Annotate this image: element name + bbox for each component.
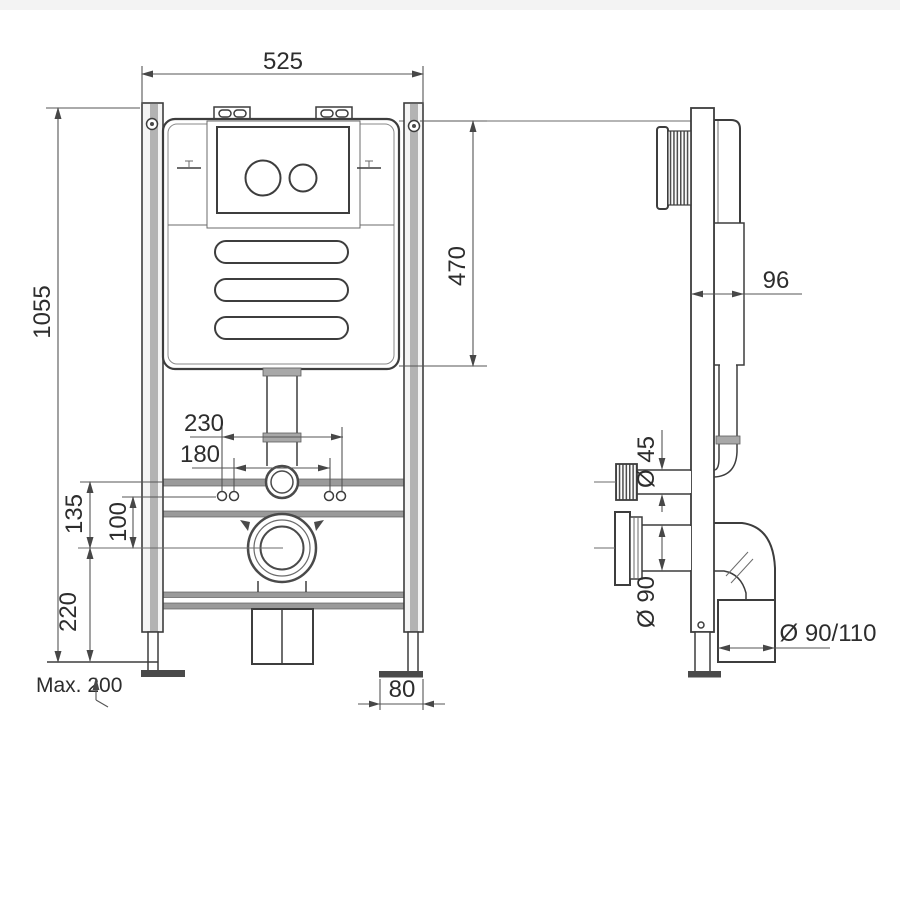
- right-anchor-dot: [412, 124, 416, 128]
- right-bracket-slot-2: [336, 110, 348, 117]
- outlet-floor-label: 220: [55, 592, 82, 632]
- depth-label: 96: [763, 267, 790, 294]
- flush-button-small: [290, 165, 317, 192]
- flush-pipe-body: [268, 371, 296, 465]
- bolt-hole-inner-right: [325, 492, 334, 501]
- bolt-outer-arrow-right: [331, 434, 343, 441]
- outlet-stub-fill: [643, 526, 691, 570]
- bolt-hole-outer-right: [337, 492, 346, 501]
- drain-outlet-socket: [718, 600, 775, 662]
- flush-plate: [217, 127, 349, 213]
- cistern-slot-2: [215, 279, 348, 301]
- side-flush-pipe-collar: [716, 436, 740, 444]
- bend-outlet-label: 135: [61, 494, 88, 534]
- side-frame-bar: [691, 108, 714, 632]
- bolt-hole-inner-left: [230, 492, 239, 501]
- left-rail-shading: [150, 104, 158, 631]
- left-anchor-dot: [150, 122, 154, 126]
- drain-diameter-label: Ø 90/110: [780, 620, 877, 647]
- cistern-slot-3: [215, 317, 348, 339]
- left-foot-plate: [141, 670, 185, 677]
- left-leg: [148, 632, 158, 672]
- scan-edge-bottom: [0, 0, 900, 10]
- side-view: [594, 108, 775, 678]
- flush-button-large: [246, 161, 281, 196]
- right-leg: [408, 632, 418, 672]
- flush-dia-arrow-bottom: [659, 494, 666, 506]
- outlet-flange-inner: [630, 517, 642, 579]
- side-frame-hole: [698, 622, 704, 628]
- drain-elbow-inner: [714, 571, 746, 600]
- side-leg: [695, 632, 710, 672]
- bolt-inner-arrow-left: [234, 465, 246, 472]
- foot-arrow-left: [369, 701, 380, 708]
- drawing-page: 525 1055 470 230 180: [0, 0, 900, 900]
- actuator-ribs: [668, 131, 691, 205]
- outlet-tab-right: [314, 520, 324, 531]
- foot-arrow-right: [423, 701, 434, 708]
- width-dimension-label: 525: [263, 48, 303, 75]
- actuator-cap: [657, 127, 668, 209]
- left-bracket-slot-1: [219, 110, 231, 117]
- flush-pipe-collar-top: [263, 368, 301, 376]
- foot-width-label: 80: [389, 676, 416, 703]
- bolt-outlet-label: 100: [105, 502, 132, 542]
- bolt-inner-label: 180: [180, 441, 220, 468]
- right-rail-shading: [410, 104, 418, 631]
- leg-adjustment-leader-tail: [96, 700, 108, 707]
- outlet-tab-left: [240, 520, 250, 531]
- right-bracket-slot-1: [321, 110, 333, 117]
- elbow-hatch-1: [726, 552, 748, 576]
- flush-bend-inner: [271, 471, 293, 493]
- outlet-diameter-label: Ø 90: [633, 576, 660, 628]
- elbow-hatch-2: [731, 559, 753, 583]
- left-bracket-slot-2: [234, 110, 246, 117]
- outlet-flange: [615, 512, 630, 585]
- technical-drawing: 525 1055 470 230 180: [0, 0, 900, 900]
- crossbar-lower: [163, 592, 405, 598]
- bolt-outer-label: 230: [184, 410, 224, 437]
- bolt-inner-arrow-right: [318, 465, 330, 472]
- front-view: [47, 103, 423, 678]
- leg-adjustment-label: Max. 200: [36, 674, 122, 697]
- cistern-slot-1: [215, 241, 348, 263]
- height-dimension-label: 1055: [29, 285, 56, 338]
- tank-dimension-label: 470: [444, 246, 471, 286]
- flush-diameter-label: Ø 45: [633, 436, 660, 488]
- side-flush-pipe-fill: [720, 364, 736, 459]
- side-foot-plate: [688, 671, 721, 678]
- bolt-hole-outer-left: [218, 492, 227, 501]
